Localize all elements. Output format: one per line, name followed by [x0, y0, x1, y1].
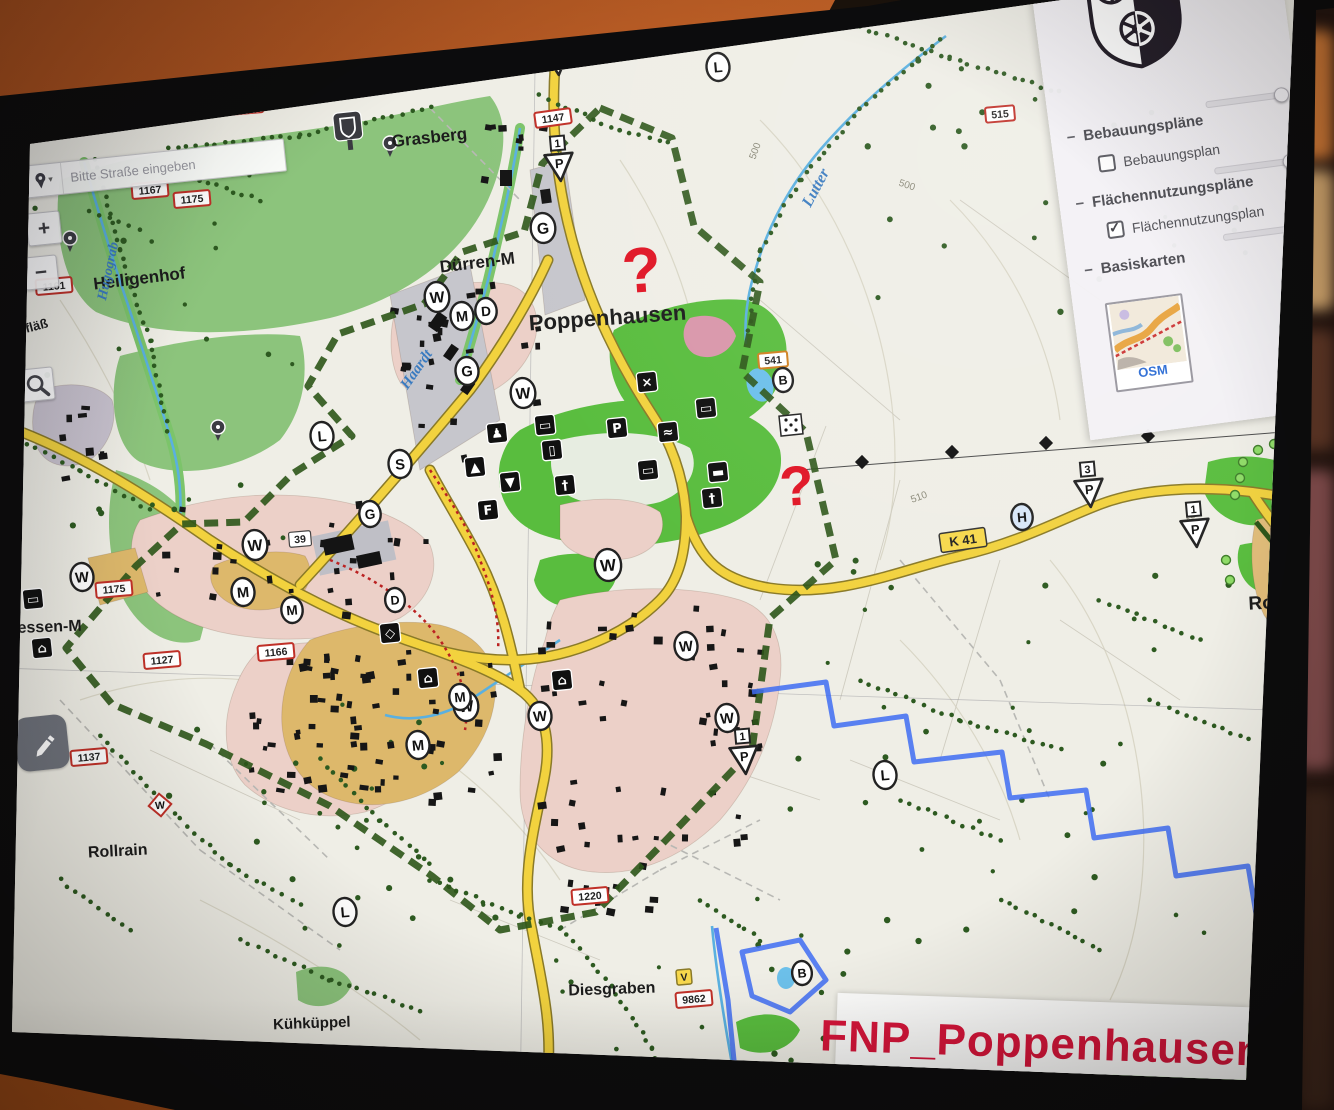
- tree-dot: [337, 943, 342, 948]
- tree-row-dot: [152, 363, 157, 368]
- tree-row-dot: [389, 114, 394, 119]
- building: [309, 724, 316, 729]
- tree-row-dot: [556, 102, 561, 107]
- tree-dot: [755, 897, 760, 902]
- zoom-out-button[interactable]: −: [22, 254, 59, 290]
- circle-letter: B: [778, 373, 788, 388]
- tree-row-dot: [1193, 716, 1198, 721]
- tree-row-dot: [318, 756, 323, 761]
- tree-dot: [863, 608, 867, 612]
- tree-row-dot: [113, 489, 118, 494]
- building: [599, 680, 605, 686]
- tree-row-dot: [958, 58, 963, 63]
- tree-row-dot: [105, 912, 110, 917]
- building: [541, 685, 550, 692]
- orchard-dot: [794, 428, 797, 431]
- tree-row-dot: [212, 850, 217, 855]
- building: [318, 698, 326, 703]
- tree-row-dot: [769, 231, 774, 236]
- plate-text: 1175: [102, 583, 126, 597]
- tree-dot: [166, 793, 172, 799]
- tree-row-dot: [282, 957, 287, 962]
- tree-row-dot: [1080, 939, 1085, 944]
- tree-row-dot: [630, 1016, 635, 1021]
- tree-row-dot: [986, 66, 991, 71]
- tree-dot: [70, 522, 76, 528]
- tree-row-dot: [960, 824, 965, 829]
- tree-symbol: [1222, 556, 1231, 565]
- tree-dot: [440, 761, 444, 765]
- building: [654, 836, 659, 840]
- tree-row-dot: [931, 708, 936, 713]
- tree-row-dot: [265, 949, 270, 954]
- tree-row-dot: [751, 287, 756, 292]
- tree-row-dot: [994, 70, 999, 75]
- icon-glyph: ×: [641, 375, 653, 391]
- tree-row-dot: [1175, 710, 1180, 715]
- tree-row-dot: [249, 194, 254, 199]
- circle-marker: B: [791, 960, 813, 986]
- tree-row-dot: [827, 144, 832, 149]
- tree-row-dot: [951, 820, 956, 825]
- tree-row-dot: [624, 1007, 629, 1012]
- tree-row-dot: [1147, 698, 1152, 703]
- building: [354, 725, 362, 731]
- tree-row-dot: [999, 898, 1004, 903]
- tree-dot: [1011, 706, 1015, 710]
- collapse-icon[interactable]: −: [1074, 195, 1085, 213]
- circle-marker: W: [527, 701, 552, 731]
- homestead-icon: ⌂: [551, 669, 573, 691]
- circle-marker: G: [358, 500, 382, 528]
- tree-row-dot: [585, 955, 590, 960]
- building: [350, 741, 357, 748]
- tree-row-dot: [957, 718, 962, 723]
- tree-row-dot: [578, 946, 583, 951]
- icon-glyph: P: [612, 421, 623, 437]
- tree-row-dot: [192, 831, 197, 836]
- layer-group-header[interactable]: − Basiskarten: [1083, 234, 1303, 280]
- tree-row-dot: [177, 816, 182, 821]
- bath-icon: ▭: [637, 459, 659, 481]
- building: [85, 447, 94, 456]
- building: [156, 592, 161, 597]
- tree-row-dot: [1030, 80, 1035, 85]
- tree-row-dot: [279, 892, 284, 897]
- icon-glyph: ◇: [384, 626, 396, 642]
- tree-row-dot: [636, 132, 641, 137]
- building: [362, 677, 371, 684]
- building: [710, 740, 716, 746]
- building: [551, 819, 558, 826]
- tree-row-dot: [185, 824, 190, 829]
- tree-row-dot: [1228, 731, 1233, 736]
- tree-row-dot: [354, 986, 359, 991]
- tree-row-dot: [138, 227, 143, 232]
- tree-row-dot: [78, 469, 83, 474]
- circle-marker: W: [69, 562, 94, 592]
- tree-dot: [560, 989, 564, 993]
- tree-row-dot: [752, 931, 757, 936]
- tree-row-dot: [1012, 76, 1017, 81]
- tree-row-dot: [200, 838, 205, 843]
- tree-row-dot: [1013, 905, 1018, 910]
- building: [600, 716, 607, 722]
- cemetery-icon: †: [701, 487, 723, 509]
- building: [393, 538, 400, 547]
- building: [380, 779, 384, 786]
- monument-icon: ▯: [541, 439, 563, 461]
- circle-letter: D: [480, 304, 491, 320]
- number-plate: 9862: [675, 990, 712, 1008]
- tree-row-dot: [705, 903, 710, 908]
- building: [417, 315, 422, 321]
- tree-dot: [882, 754, 888, 760]
- tree-row-dot: [1039, 86, 1044, 91]
- tree-row-dot: [599, 122, 604, 127]
- tree-row-dot: [95, 479, 100, 484]
- tree-dot: [290, 362, 294, 366]
- tree-dot: [888, 585, 894, 591]
- circle-marker: L: [309, 421, 334, 451]
- tree-row-dot: [408, 843, 413, 848]
- tree-row-dot: [52, 455, 57, 460]
- tree-row-dot: [138, 504, 143, 509]
- checkbox-checked[interactable]: [1106, 220, 1125, 239]
- draw-tool-button[interactable]: [13, 713, 70, 772]
- tree-row-dot: [758, 249, 763, 254]
- tree-dot: [1152, 573, 1158, 579]
- icon-glyph: ▭: [699, 401, 713, 417]
- tree-row-dot: [1049, 744, 1054, 749]
- tree-dot: [416, 720, 422, 726]
- tree-row-dot: [746, 328, 751, 333]
- tree-dot: [1174, 913, 1179, 918]
- tree-row-dot: [138, 776, 143, 781]
- tree-row-dot: [363, 121, 368, 126]
- circle-marker: W: [714, 703, 739, 733]
- tree-dot: [183, 302, 187, 306]
- tree-row-dot: [141, 320, 146, 325]
- tree-dot: [410, 915, 416, 921]
- tree-row-dot: [287, 135, 292, 140]
- building: [342, 611, 351, 619]
- tree-row-dot: [698, 898, 703, 903]
- tree-row-dot: [372, 991, 377, 996]
- layer-group-label: Bebauungspläne: [1082, 112, 1204, 145]
- building: [598, 627, 607, 632]
- building: [375, 786, 381, 792]
- tree-row-dot: [916, 806, 921, 811]
- tree-row-dot: [773, 223, 778, 228]
- tree-row-dot: [97, 213, 102, 218]
- tree-row-dot: [898, 798, 903, 803]
- building: [433, 792, 442, 801]
- tree-symbol: [1231, 491, 1240, 500]
- tree-row-dot: [939, 711, 944, 716]
- triangle-letter: P: [554, 156, 564, 172]
- tree-row-dot: [108, 215, 113, 220]
- tree-symbol: [1226, 576, 1235, 585]
- building: [475, 289, 483, 295]
- tree-row-dot: [1022, 738, 1027, 743]
- building: [310, 695, 318, 703]
- tree-row-dot: [137, 310, 142, 315]
- tree-dot: [364, 818, 369, 823]
- tree-dot: [355, 845, 360, 850]
- building: [390, 572, 395, 580]
- triangle-up-icon: ▲: [464, 456, 486, 478]
- building: [521, 342, 529, 349]
- tree-row-dot: [352, 791, 357, 796]
- tree-row-dot: [81, 894, 86, 899]
- tree-row-dot: [132, 293, 137, 298]
- building: [433, 708, 440, 714]
- tree-row-dot: [126, 223, 131, 228]
- orchard-dot: [784, 428, 787, 431]
- tree-row-dot: [1096, 598, 1101, 603]
- tree-row-dot: [429, 105, 434, 110]
- circle-marker: M: [449, 301, 474, 331]
- triangle-down-icon: ▼: [499, 471, 521, 493]
- tree-row-dot: [105, 203, 110, 208]
- tree-row-dot: [391, 999, 396, 1004]
- building: [350, 558, 357, 563]
- tree-dot: [171, 507, 177, 513]
- tree-row-dot: [930, 44, 935, 49]
- collapse-icon[interactable]: −: [1083, 262, 1094, 280]
- tree-dot: [799, 933, 803, 937]
- triangle-number: 1: [739, 731, 746, 743]
- icon-glyph: ▲: [469, 460, 481, 476]
- plate-text: 1137: [77, 751, 101, 765]
- pond-icon: ▭: [534, 414, 556, 436]
- place-label: Diesgraben: [568, 979, 656, 999]
- building: [334, 568, 340, 575]
- tree-row-dot: [1153, 619, 1158, 624]
- tree-dot: [281, 535, 286, 540]
- tree-dot: [194, 727, 200, 733]
- tree-dot: [120, 238, 126, 244]
- tree-row-dot: [559, 925, 564, 930]
- building: [212, 567, 218, 574]
- tree-dot: [875, 295, 880, 300]
- tree-row-dot: [400, 112, 405, 117]
- building: [699, 717, 707, 725]
- tree-row-dot: [947, 55, 952, 60]
- icon-glyph: ▬: [711, 465, 725, 481]
- tree-row-dot: [864, 102, 869, 107]
- tree-row-dot: [729, 919, 734, 924]
- building: [397, 659, 406, 666]
- tree-row-dot: [255, 879, 260, 884]
- tree-row-dot: [650, 1046, 655, 1051]
- tree-row-dot: [134, 303, 139, 308]
- circle-marker: D: [474, 297, 498, 325]
- tree-row-dot: [1059, 747, 1064, 752]
- tree-row-dot: [1032, 913, 1037, 918]
- tree-row-dot: [152, 791, 157, 796]
- tree-row-dot: [571, 939, 576, 944]
- tree-row-dot: [1024, 910, 1029, 915]
- circle-marker: D: [384, 587, 406, 613]
- tree-row-dot: [87, 209, 92, 214]
- building: [345, 599, 352, 606]
- icon-glyph: ♟: [491, 426, 504, 442]
- circle-letter: G: [461, 364, 474, 381]
- tree-row-dot: [519, 912, 524, 917]
- building: [450, 418, 457, 425]
- tree-dot: [1132, 617, 1137, 622]
- circle-letter: W: [247, 537, 263, 555]
- tree-row-dot: [885, 688, 890, 693]
- tree-row-dot: [231, 190, 236, 195]
- tree-row-dot: [817, 157, 822, 162]
- tree-dot: [865, 143, 871, 149]
- tree-row-dot: [270, 887, 275, 892]
- tree-dot: [844, 948, 850, 954]
- number-plate: 1137: [70, 748, 107, 766]
- building: [481, 176, 489, 184]
- tree-dot: [840, 971, 846, 977]
- municipal-coat-of-arms: [1079, 0, 1291, 80]
- plate-text: 9862: [682, 993, 706, 1007]
- tree-dot: [481, 903, 485, 907]
- collapse-icon[interactable]: −: [1066, 129, 1077, 147]
- tree-row-dot: [245, 942, 250, 947]
- tree-dot: [447, 877, 453, 883]
- tree-row-dot: [1020, 78, 1025, 83]
- tree-dot: [1026, 640, 1030, 644]
- circle-letter: W: [515, 385, 531, 403]
- tree-dot: [266, 352, 272, 358]
- layer-group-label: Basiskarten: [1100, 249, 1187, 277]
- circle-marker: L: [872, 760, 897, 790]
- tree-row-dot: [979, 831, 984, 836]
- number-plate: 541: [758, 351, 788, 368]
- tree-dot: [1071, 908, 1077, 914]
- tree-row-dot: [1097, 948, 1102, 953]
- tree-row-dot: [239, 193, 244, 198]
- tree-dot: [1152, 647, 1157, 652]
- tree-row-dot: [944, 814, 949, 819]
- tree-dot: [923, 729, 929, 735]
- tree-row-dot: [835, 136, 840, 141]
- building: [323, 673, 331, 679]
- tree-dot: [882, 705, 887, 710]
- tree-row-dot: [879, 88, 884, 93]
- monitor-screen: PoppenhausenGrasbergHeiligenhofDürren-MH…: [0, 0, 1334, 1110]
- tree-row-dot: [148, 339, 153, 344]
- tree-row-dot: [145, 327, 150, 332]
- tree-row-dot: [364, 806, 369, 811]
- tree-dot: [920, 847, 925, 852]
- tree-row-dot: [500, 906, 505, 911]
- tree-row-dot: [1041, 742, 1046, 747]
- building: [336, 693, 342, 701]
- osm-preview-image: [1109, 296, 1187, 371]
- zoom-in-button[interactable]: +: [25, 210, 62, 246]
- bus-icon: ▬: [707, 461, 729, 483]
- tree-row-dot: [108, 212, 113, 217]
- circle-letter: W: [75, 570, 90, 587]
- tree-row-dot: [1002, 71, 1007, 76]
- tree-row-dot: [1184, 713, 1189, 718]
- tree-dot: [1033, 97, 1038, 102]
- building: [406, 650, 411, 655]
- tree-row-dot: [998, 838, 1003, 843]
- building: [174, 568, 179, 573]
- circle-letter: S: [395, 457, 406, 474]
- building: [388, 538, 393, 542]
- tree-dot: [290, 876, 296, 882]
- tree-dot: [416, 854, 422, 860]
- search-category-dropdown[interactable]: ▾: [24, 163, 64, 198]
- building: [393, 688, 399, 695]
- tree-dot: [657, 965, 661, 969]
- tree-row-dot: [788, 194, 793, 199]
- building: [393, 775, 398, 779]
- tree-row-dot: [98, 734, 103, 739]
- tree-row-dot: [781, 203, 786, 208]
- tree-dot: [942, 243, 947, 248]
- building: [66, 415, 72, 423]
- tree-row-dot: [370, 810, 375, 815]
- waterworks-icon: ≈: [657, 421, 679, 443]
- tree-row-dot: [809, 164, 814, 169]
- homestead-icon: ⌂: [417, 667, 439, 689]
- number-plate: 1175: [173, 190, 210, 208]
- building: [267, 575, 273, 583]
- triangle-number: 1: [554, 138, 561, 150]
- building: [329, 522, 335, 527]
- building: [617, 835, 622, 843]
- building: [100, 451, 105, 456]
- tree-dot: [1118, 742, 1123, 747]
- number-plate: 1166: [257, 643, 294, 661]
- letter-f-icon: F: [477, 499, 499, 521]
- tree-row-dot: [857, 106, 862, 111]
- tree-row-dot: [96, 906, 101, 911]
- icon-glyph: ▭: [641, 463, 655, 479]
- building: [538, 647, 546, 654]
- plate-text: 1166: [264, 646, 288, 660]
- tree-row-dot: [65, 885, 70, 890]
- tree-row-dot: [110, 221, 115, 226]
- tree-symbol: [1236, 474, 1245, 483]
- tree-row-dot: [73, 889, 78, 894]
- building: [615, 786, 621, 792]
- building: [609, 633, 617, 640]
- tree-row-dot: [988, 833, 993, 838]
- tree-row-dot: [220, 856, 225, 861]
- tree-dot: [977, 819, 982, 824]
- building: [707, 644, 715, 651]
- circle-marker: M: [280, 596, 304, 624]
- tree-dot: [819, 990, 824, 995]
- building: [650, 897, 659, 903]
- tree-row-dot: [144, 784, 149, 789]
- basemap-osm-thumbnail[interactable]: OSM: [1105, 293, 1194, 392]
- slider-knob[interactable]: [1273, 86, 1290, 103]
- tree-row-dot: [938, 37, 943, 42]
- tree-dot: [700, 1025, 705, 1030]
- checkbox-unchecked[interactable]: [1097, 154, 1116, 173]
- chapel-icon: ⌂: [31, 637, 53, 659]
- circle-letter: W: [720, 711, 735, 728]
- tree-row-dot: [206, 181, 211, 186]
- tree-row-dot: [714, 908, 719, 913]
